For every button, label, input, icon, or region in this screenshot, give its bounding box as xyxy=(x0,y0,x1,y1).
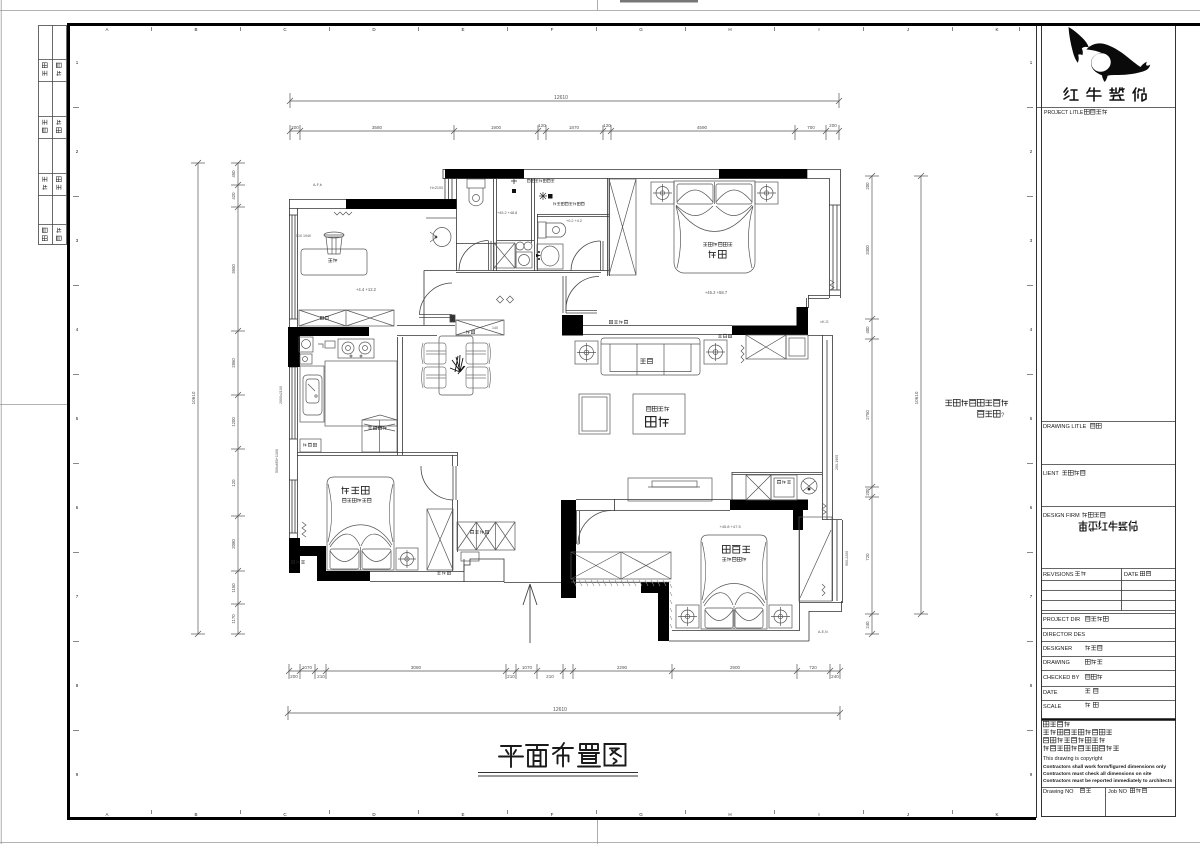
svg-text:J: J xyxy=(907,27,909,32)
svg-text:PROJECT LITLE: PROJECT LITLE xyxy=(1044,110,1084,116)
svg-text:F: F xyxy=(551,812,554,817)
svg-text:A: A xyxy=(105,812,108,817)
svg-text:1170: 1170 xyxy=(231,614,236,624)
svg-text:140: 140 xyxy=(492,326,498,330)
svg-text:3580: 3580 xyxy=(372,125,383,130)
svg-text:DRAWING: DRAWING xyxy=(1043,660,1070,666)
svg-text:2900: 2900 xyxy=(730,665,741,670)
svg-text:H≈2100: H≈2100 xyxy=(430,186,443,190)
svg-text:2860: 2860 xyxy=(231,358,236,368)
svg-text:I: I xyxy=(818,812,819,817)
svg-text:A-E,N: A-E,N xyxy=(818,630,828,634)
svg-text:1070: 1070 xyxy=(522,665,533,670)
svg-text:1150: 1150 xyxy=(231,583,236,593)
svg-text:REVISIONS: REVISIONS xyxy=(1043,572,1074,578)
svg-text:B: B xyxy=(194,812,197,817)
svg-text:DESIGN FIRM: DESIGN FIRM xyxy=(1043,513,1080,519)
svg-text:E: E xyxy=(461,27,464,32)
svg-text:210: 210 xyxy=(317,674,325,679)
svg-text:LIENT: LIENT xyxy=(1043,471,1059,477)
svg-text:2750: 2750 xyxy=(865,410,870,420)
svg-text:720: 720 xyxy=(865,553,870,561)
svg-text:I: I xyxy=(818,27,819,32)
svg-text:450: 450 xyxy=(231,170,236,178)
svg-text:2080: 2080 xyxy=(231,539,236,549)
svg-text:2000x2100: 2000x2100 xyxy=(279,386,283,404)
svg-text:1870: 1870 xyxy=(569,125,580,130)
svg-text:200: 200 xyxy=(865,488,870,496)
svg-text:1070: 1070 xyxy=(302,665,313,670)
svg-text:J: J xyxy=(907,812,909,817)
svg-text:B: B xyxy=(194,27,197,32)
svg-text:200: 200 xyxy=(291,125,299,130)
svg-text:3300: 3300 xyxy=(865,245,870,255)
svg-text:Drawing NO: Drawing NO xyxy=(1043,789,1074,795)
svg-text:+4.4 +12.2: +4.4 +12.2 xyxy=(356,287,377,292)
svg-text:240: 240 xyxy=(831,674,839,679)
svg-text:+45.2 +48.8: +45.2 +48.8 xyxy=(497,211,517,215)
svg-text:1200: 1200 xyxy=(231,417,236,427)
svg-text:PROJECT DIR: PROJECT DIR xyxy=(1043,617,1080,623)
svg-text:200: 200 xyxy=(865,182,870,190)
svg-text:F: F xyxy=(551,27,554,32)
svg-text:200-1905: 200-1905 xyxy=(835,455,839,470)
svg-text:120: 120 xyxy=(231,479,236,487)
svg-text:DESIGNER: DESIGNER xyxy=(1043,646,1072,652)
svg-text:Contractors shall work form/fi: Contractors shall work form/figured dime… xyxy=(1043,764,1166,770)
svg-text:H: H xyxy=(728,812,731,817)
svg-text:1900: 1900 xyxy=(491,125,502,130)
svg-text:12610: 12610 xyxy=(554,95,568,101)
svg-text:G: G xyxy=(639,27,643,32)
svg-text:H: H xyxy=(728,27,731,32)
svg-text:420: 420 xyxy=(231,192,236,200)
svg-text:K: K xyxy=(995,812,998,817)
svg-text:+45.8 +47.5: +45.8 +47.5 xyxy=(719,524,741,529)
svg-text:240: 240 xyxy=(865,621,870,629)
svg-text:200: 200 xyxy=(290,674,298,679)
svg-text:DRAWING LITLE: DRAWING LITLE xyxy=(1043,424,1087,430)
svg-text:210: 210 xyxy=(546,674,554,679)
svg-text:+0.2 +4.2: +0.2 +4.2 xyxy=(566,219,582,223)
svg-text:10610: 10610 xyxy=(191,391,196,404)
svg-text:3080: 3080 xyxy=(411,665,422,670)
svg-text:DATE: DATE xyxy=(1124,572,1139,578)
svg-text:400: 400 xyxy=(865,326,870,334)
svg-text:500x650+1300: 500x650+1300 xyxy=(275,449,279,473)
svg-text:≈K.G: ≈K.G xyxy=(820,320,829,324)
svg-text:DIRECTOR DES: DIRECTOR DES xyxy=(1043,632,1085,638)
svg-text:A: A xyxy=(105,27,108,32)
svg-text:This drawing is copyright: This drawing is copyright xyxy=(1043,756,1103,762)
svg-text:900-2200: 900-2200 xyxy=(845,551,849,566)
svg-text:12610: 12610 xyxy=(553,707,567,713)
svg-text:Contractors must check all dim: Contractors must check all dimensions on… xyxy=(1043,771,1152,777)
svg-text:120: 120 xyxy=(603,123,611,128)
svg-text:Contractors must be reported i: Contractors must be reported immediately… xyxy=(1043,778,1172,784)
svg-text:120: 120 xyxy=(538,123,546,128)
svg-text:510 1940: 510 1940 xyxy=(296,234,311,238)
svg-text:+45.2 +58.7: +45.2 +58.7 xyxy=(705,290,728,295)
svg-text:210: 210 xyxy=(507,674,515,679)
svg-text:K: K xyxy=(995,27,998,32)
svg-text:10610: 10610 xyxy=(914,391,919,404)
svg-text:720: 720 xyxy=(809,665,817,670)
svg-text:E: E xyxy=(461,812,464,817)
svg-text:CHECKED BY: CHECKED BY xyxy=(1043,675,1080,681)
svg-text:4590: 4590 xyxy=(697,125,708,130)
svg-text:700: 700 xyxy=(807,125,815,130)
svg-text:A-F,b: A-F,b xyxy=(313,183,322,187)
svg-text:3650: 3650 xyxy=(231,264,236,274)
svg-text:SCALE: SCALE xyxy=(1043,704,1062,710)
svg-text:Job NO: Job NO xyxy=(1108,789,1128,795)
svg-text:G: G xyxy=(639,812,643,817)
svg-text:DATE: DATE xyxy=(1043,690,1058,696)
svg-text:2290: 2290 xyxy=(617,665,628,670)
svg-text:200: 200 xyxy=(829,123,837,128)
